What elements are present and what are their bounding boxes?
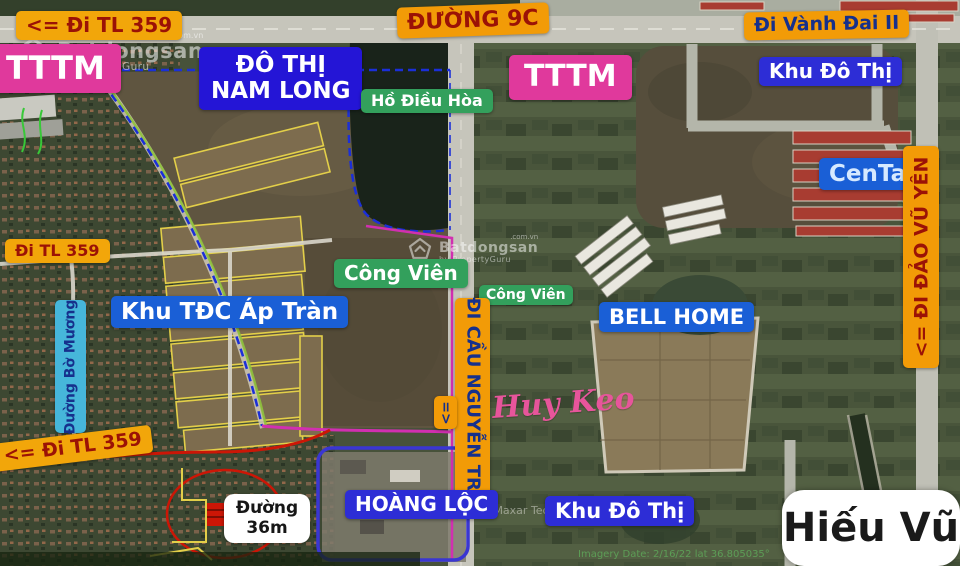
- label-hoang-loc: HOÀNG LỘC: [345, 490, 498, 519]
- watermark-name: Batdongsan: [439, 241, 538, 256]
- label-cong-vien-small: Công Viên: [479, 285, 573, 305]
- label-duong-36m-line2: 36m: [234, 519, 300, 539]
- imagery-credit: Imagery Date: 2/16/22 lat 36.805035°: [578, 549, 770, 560]
- batdongsan-logo-icon: [408, 237, 432, 261]
- label-bell-home: BELL HOME: [599, 302, 754, 332]
- label-do-thi-nam-long-line2: NAM LONG: [211, 78, 350, 104]
- label-duong-bo-muong: Đường Bờ Mương: [55, 300, 86, 433]
- label-duong-36m-line1: Đường: [234, 499, 300, 519]
- label-duong-36m: Đường 36m: [224, 494, 310, 543]
- label-cong-vien-main: Công Viên: [334, 259, 468, 288]
- label-centa: CenTa: [819, 158, 916, 190]
- map-canvas: .com.vn Batdongsan by PropertyGuru .com.…: [0, 0, 960, 566]
- label-duong-9c: ĐƯỜNG 9C: [397, 2, 550, 39]
- label-khu-tdc-ap-tran: Khu TĐC Áp Tràn: [111, 296, 348, 328]
- label-khu-do-thi-top: Khu Đô Thị: [759, 57, 902, 86]
- arrow-down-icon: =>: [434, 396, 457, 429]
- label-do-thi-nam-long-line1: ĐÔ THỊ: [211, 52, 350, 78]
- lake: [350, 40, 448, 230]
- label-tttm-center: TTTM: [509, 55, 632, 100]
- label-di-vanh-dai-2: Đi Vành Đai II: [744, 10, 910, 41]
- label-di-tl359-top: <= Đi TL 359: [16, 11, 182, 40]
- label-do-thi-nam-long: ĐÔ THỊ NAM LONG: [199, 47, 362, 110]
- label-di-cau-nguyen-trai: ĐI CẦU NGUYỄN TRÃI: [455, 298, 490, 510]
- bottom-shade: [0, 552, 420, 566]
- label-tttm-left: TTTM: [0, 44, 121, 93]
- label-ho-dieu-hoa: Hồ Điều Hòa: [361, 89, 493, 113]
- label-di-dao-vu-yen: <= ĐI ĐẢO VŨ YÊN: [903, 146, 939, 368]
- label-khu-do-thi-bottom: Khu Đô Thị: [545, 496, 694, 526]
- label-di-tl359-left: Đi TL 359: [5, 239, 110, 263]
- signature-hieu-vu: Hiếu Vũ: [782, 490, 960, 566]
